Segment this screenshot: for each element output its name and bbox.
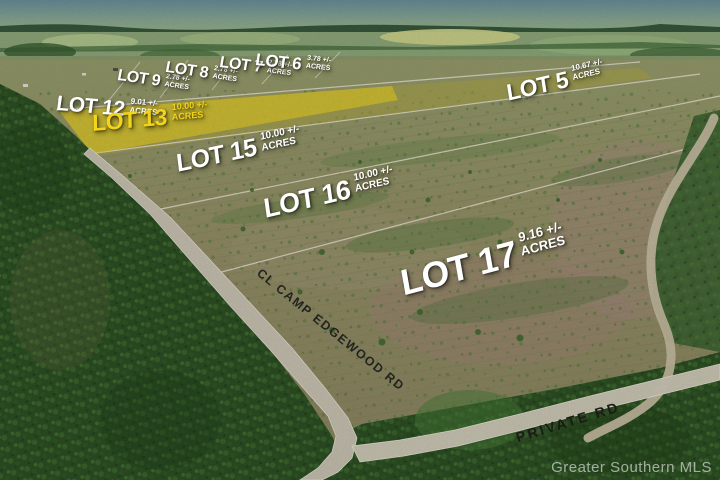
- aerial-photo-terrain: [0, 0, 720, 480]
- photo-grain: [0, 0, 720, 480]
- aerial-lot-map: LOT 9 2.78 +/- ACRES LOT 8 2.78 +/- ACRE…: [0, 0, 720, 480]
